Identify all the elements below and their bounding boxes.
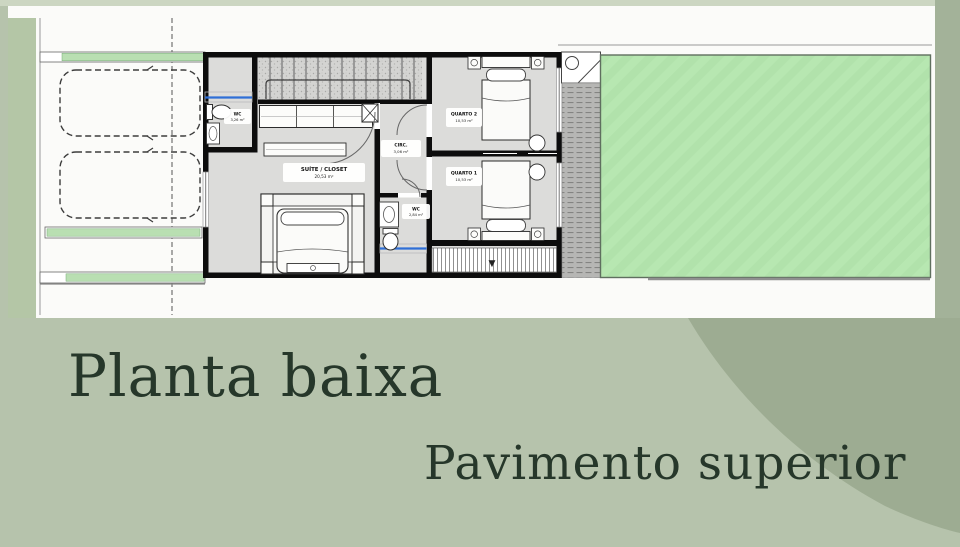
planter-strip-top	[40, 52, 205, 62]
svg-text:WC: WC	[412, 207, 420, 212]
service-box	[562, 52, 601, 83]
balcony-railing: ▼	[432, 248, 557, 272]
svg-text:QUARTO 2: QUARTO 2	[451, 112, 477, 118]
window-suite	[203, 172, 209, 227]
svg-text:10,53 m²: 10,53 m²	[455, 118, 473, 123]
wardrobe	[260, 106, 373, 128]
double-bed-suite	[261, 194, 364, 274]
svg-text:QUARTO 1: QUARTO 1	[451, 171, 477, 177]
nightstand-quarto1-right	[532, 228, 545, 241]
room-label-circ: CIRC. 3,06 m²	[381, 140, 421, 157]
room-label-quarto2: QUARTO 2 10,53 m²	[446, 108, 482, 127]
nightstand-quarto1-left	[468, 228, 481, 241]
svg-text:3,06 m²: 3,06 m²	[394, 149, 409, 154]
room-label-quarto1: QUARTO 1 10,53 m²	[446, 167, 482, 186]
car-outline-1	[60, 66, 200, 140]
room-label-suite: SUÍTE / CLOSET 20,53 m²	[283, 163, 365, 182]
closet-shelf	[264, 143, 346, 156]
toilet-icon-wc2	[383, 229, 398, 251]
svg-text:2,84 m²: 2,84 m²	[409, 213, 424, 217]
svg-text:SUÍTE / CLOSET: SUÍTE / CLOSET	[301, 165, 348, 173]
room-label-wc1: WC 3,26 m²	[224, 109, 251, 124]
window-quarto1	[557, 163, 563, 227]
car-outline-2	[60, 148, 200, 222]
stairs	[258, 57, 422, 102]
sink-icon-wc2	[380, 202, 399, 227]
door-symbol	[362, 104, 378, 122]
floor-plan: ▼ WC 3,26 m² SUÍTE / CLOSET 20,53 m² CIR…	[0, 0, 960, 330]
nightstand-quarto2-right	[532, 57, 545, 70]
planter-strip-bottom	[40, 272, 205, 283]
slide: ▼ WC 3,26 m² SUÍTE / CLOSET 20,53 m² CIR…	[0, 0, 960, 547]
svg-text:20,53 m²: 20,53 m²	[314, 174, 333, 179]
lawn-area	[601, 55, 931, 278]
sink-icon-wc1	[207, 123, 220, 144]
page-subtitle: Pavimento superior	[424, 436, 906, 491]
page-title: Planta baixa	[68, 342, 443, 410]
chair-quarto1	[529, 164, 545, 180]
chair-quarto2	[529, 135, 545, 151]
room-label-wc2: WC 2,84 m²	[402, 204, 430, 219]
svg-text:CIRC.: CIRC.	[394, 143, 407, 149]
svg-text:3,26 m²: 3,26 m²	[230, 118, 245, 122]
single-bed-quarto1	[482, 161, 530, 241]
down-arrow-icon: ▼	[489, 259, 496, 269]
svg-text:10,53 m²: 10,53 m²	[455, 177, 473, 182]
planter-strip-middle	[45, 227, 202, 238]
svg-text:WC: WC	[234, 112, 242, 117]
roof-strip	[562, 83, 601, 278]
utility-circle-icon	[566, 57, 579, 70]
nightstand-quarto2-left	[468, 57, 481, 70]
